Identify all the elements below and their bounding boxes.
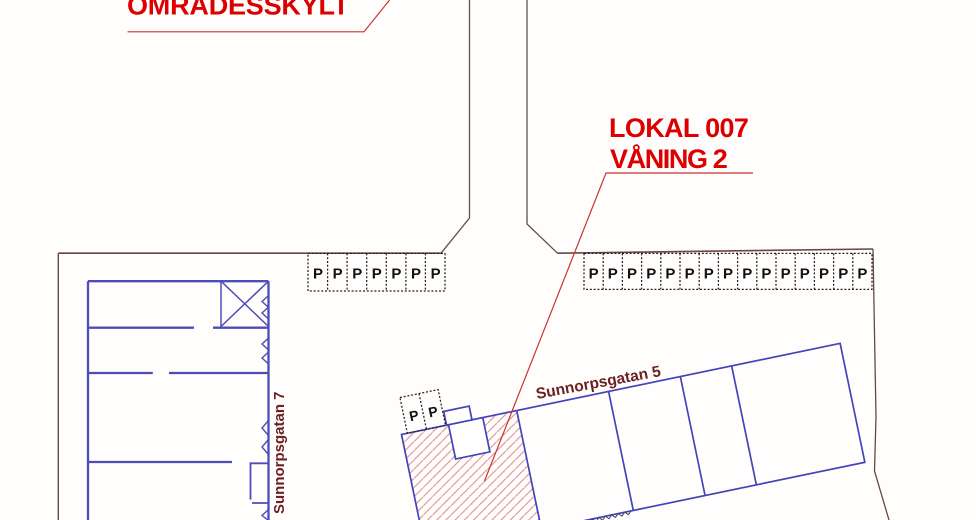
svg-text:P: P	[800, 266, 810, 283]
svg-text:P: P	[372, 266, 382, 283]
svg-text:Sunnorpsgatan 7: Sunnorpsgatan 7	[271, 391, 288, 514]
svg-text:P: P	[819, 266, 829, 283]
svg-text:P: P	[761, 266, 771, 283]
svg-text:P: P	[742, 266, 752, 283]
svg-text:P: P	[857, 266, 867, 283]
svg-text:P: P	[589, 266, 599, 283]
svg-text:P: P	[431, 266, 441, 283]
svg-text:OMRÅDESSKYLT: OMRÅDESSKYLT	[127, 0, 350, 21]
svg-text:P: P	[627, 266, 637, 283]
svg-text:P: P	[411, 266, 421, 283]
svg-text:P: P	[352, 266, 362, 283]
svg-text:P: P	[723, 266, 733, 283]
svg-text:P: P	[333, 266, 343, 283]
svg-text:P: P	[838, 266, 848, 283]
svg-text:VÅNING 2: VÅNING 2	[610, 143, 727, 174]
svg-text:P: P	[646, 266, 656, 283]
svg-text:P: P	[685, 266, 695, 283]
svg-text:P: P	[704, 266, 714, 283]
svg-text:P: P	[313, 266, 323, 283]
svg-text:P: P	[391, 266, 401, 283]
svg-text:LOKAL 007: LOKAL 007	[609, 113, 748, 143]
svg-text:P: P	[608, 266, 618, 283]
svg-text:P: P	[665, 266, 675, 283]
svg-text:P: P	[781, 266, 791, 283]
